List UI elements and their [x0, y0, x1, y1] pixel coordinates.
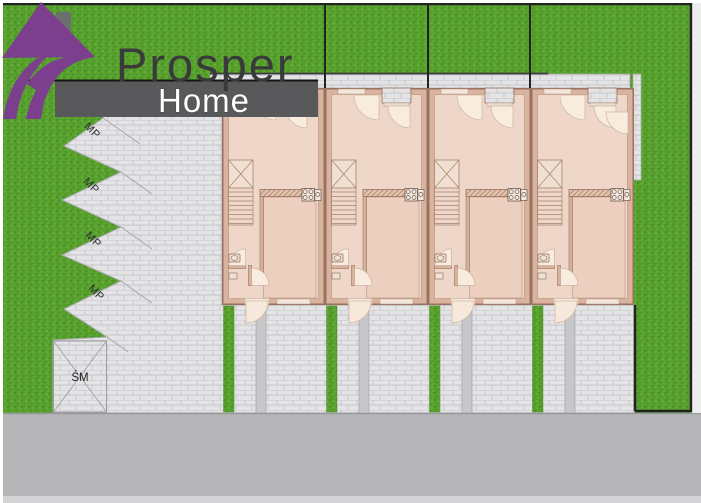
- side-path: [633, 74, 641, 180]
- walkway: [462, 306, 472, 414]
- margin-left: [0, 0, 3, 503]
- margin-right: [693, 0, 701, 413]
- site-plan-page: ŚM MP MP MP MP Prosper Home: [0, 0, 701, 503]
- home-label: Home: [158, 82, 250, 119]
- walkway: [359, 306, 369, 414]
- grass-strip: [430, 306, 441, 412]
- grass-strip: [224, 306, 235, 412]
- site-plan-svg: ŚM MP MP MP MP Prosper Home: [0, 0, 701, 503]
- house-unit-2: [326, 88, 428, 323]
- house-unit-3: [429, 88, 531, 323]
- grass-strip: [533, 306, 544, 412]
- house-unit-1: [223, 88, 325, 323]
- road: [0, 414, 701, 503]
- grass-strip: [327, 306, 338, 412]
- walkway: [565, 306, 575, 414]
- waste-area-label: ŚM: [71, 371, 88, 384]
- margin-top: [0, 0, 701, 3]
- walkway: [256, 306, 266, 414]
